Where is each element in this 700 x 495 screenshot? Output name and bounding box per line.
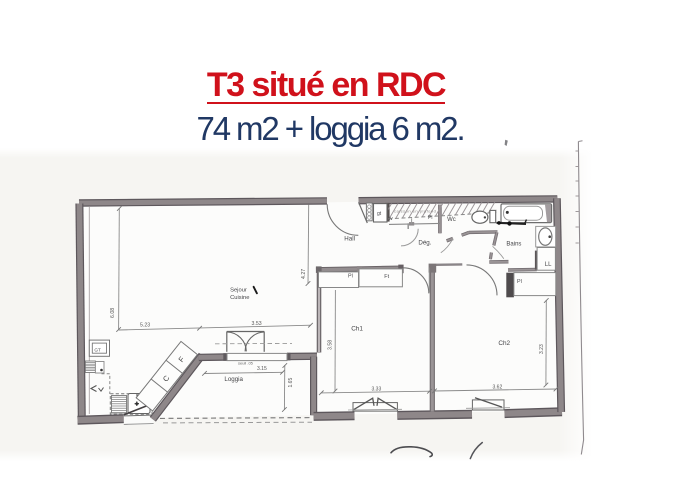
svg-text:Loggia: Loggia	[224, 376, 243, 383]
svg-text:Ch1: Ch1	[351, 325, 363, 332]
svg-text:caisson en plafond: caisson en plafond	[394, 208, 436, 213]
svg-text:3.23: 3.23	[539, 344, 545, 354]
svg-text:1.65: 1.65	[288, 378, 294, 388]
svg-text:3.15: 3.15	[257, 366, 267, 372]
svg-text:Pl: Pl	[428, 215, 432, 221]
svg-text:Pl: Pl	[348, 274, 353, 280]
svg-text:Hall: Hall	[344, 236, 355, 243]
svg-text:Bains: Bains	[506, 242, 521, 248]
svg-text:5.23: 5.23	[140, 323, 150, 329]
svg-text:6.08: 6.08	[110, 308, 116, 318]
svg-text:Ft: Ft	[384, 274, 389, 280]
svg-text:Pl: Pl	[517, 279, 522, 285]
svg-text:3.58: 3.58	[328, 340, 334, 350]
svg-text:seuil .05: seuil .05	[238, 360, 254, 365]
svg-text:3.33: 3.33	[372, 386, 382, 392]
svg-text:Dég.: Dég.	[418, 239, 431, 246]
svg-text:Cuisine: Cuisine	[230, 295, 249, 301]
svg-text:gt: gt	[377, 211, 382, 217]
svg-text:LL: LL	[545, 262, 552, 268]
svg-text:Ch2: Ch2	[498, 340, 510, 347]
svg-text:tv: tv	[389, 216, 393, 222]
svg-text:Wc: Wc	[447, 217, 456, 223]
svg-text:Sejour: Sejour	[230, 288, 247, 294]
svg-text:3.62: 3.62	[493, 385, 503, 391]
svg-text:4.27: 4.27	[301, 269, 307, 279]
svg-text:GT: GT	[94, 347, 101, 352]
svg-text:3.53: 3.53	[252, 321, 262, 327]
